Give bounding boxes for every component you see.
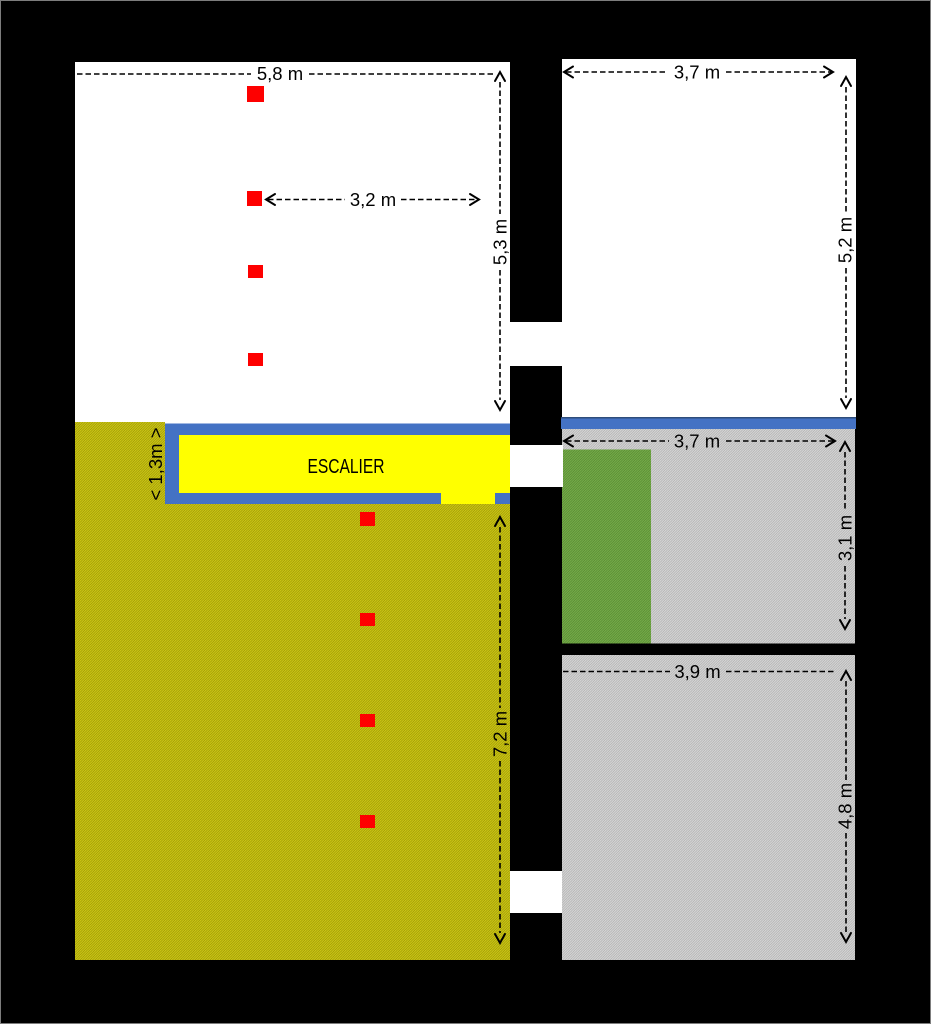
- svg-text:4,8 m: 4,8 m: [835, 783, 856, 829]
- svg-text:3,1 m: 3,1 m: [835, 515, 856, 561]
- svg-text:3,2 m: 3,2 m: [350, 189, 396, 210]
- svg-text:ESCALIER: ESCALIER: [307, 455, 384, 477]
- svg-text:3,9 m: 3,9 m: [674, 661, 720, 682]
- svg-text:3,7 m: 3,7 m: [674, 62, 720, 83]
- svg-text:5,8 m: 5,8 m: [257, 63, 303, 84]
- svg-text:5,3 m: 5,3 m: [490, 219, 511, 265]
- svg-text:3,7 m: 3,7 m: [674, 431, 720, 452]
- svg-text:5,2 m: 5,2 m: [835, 217, 856, 263]
- svg-text:< 1,3m >: < 1,3m >: [145, 427, 166, 500]
- svg-text:7,2 m: 7,2 m: [490, 711, 511, 757]
